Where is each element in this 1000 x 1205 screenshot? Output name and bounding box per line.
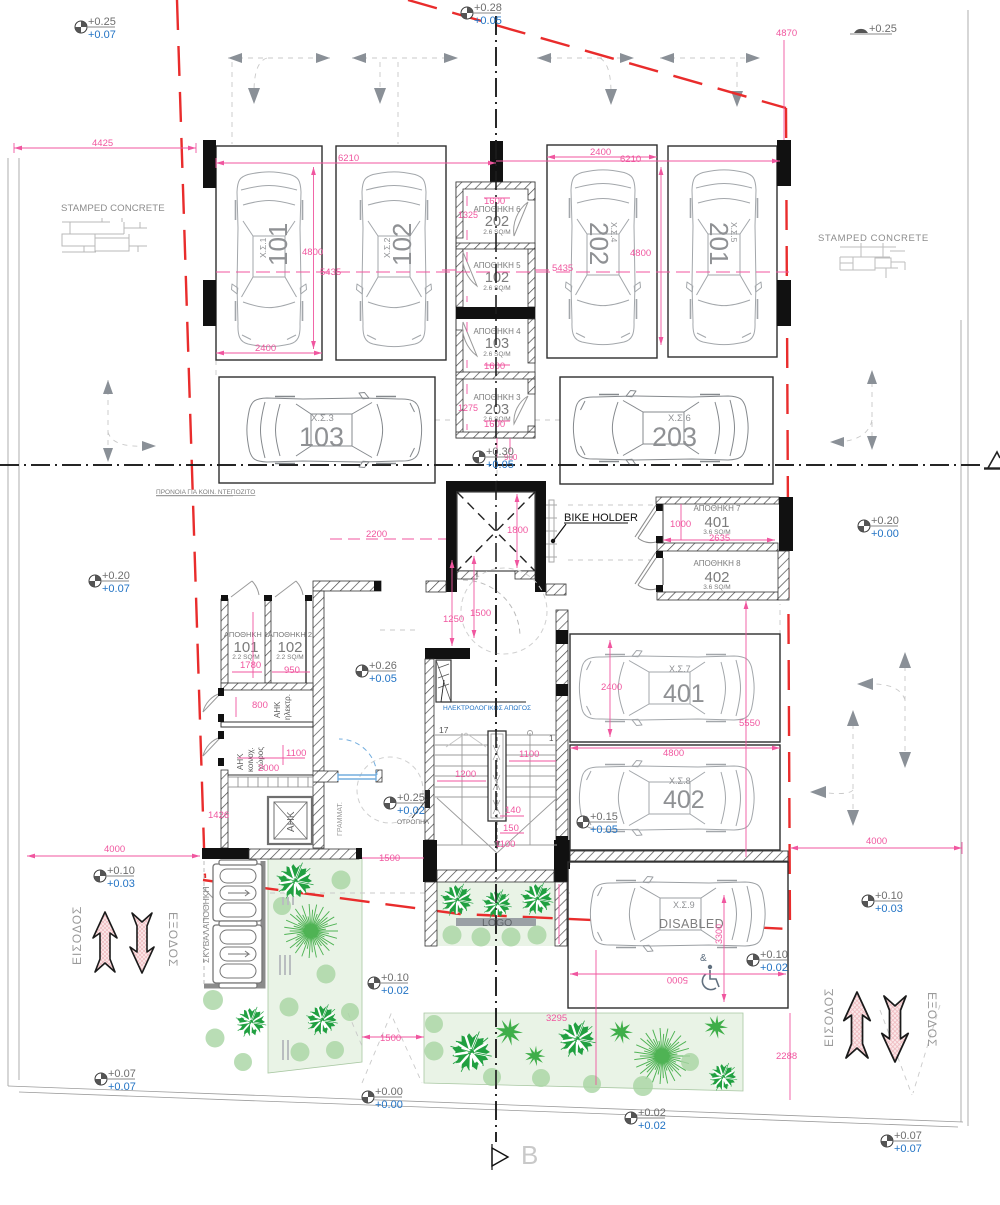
svg-text:1800: 1800: [507, 525, 528, 536]
svg-text:2288: 2288: [776, 1051, 797, 1062]
svg-text:4000: 4000: [866, 836, 887, 847]
svg-text:+0.25: +0.25: [88, 16, 116, 28]
svg-text:+0.28: +0.28: [474, 2, 502, 14]
svg-text:ΑΠΟΘΗΚΗ 2: ΑΠΟΘΗΚΗ 2: [268, 630, 312, 639]
svg-text:ΑΠΟΘΗΚΗ 4: ΑΠΟΘΗΚΗ 4: [473, 327, 521, 336]
svg-text:5435: 5435: [320, 267, 341, 278]
svg-text:ηλεκτρ.: ηλεκτρ.: [283, 694, 292, 720]
svg-text:4800: 4800: [663, 748, 684, 759]
svg-text:ΑΗΚ: ΑΗΚ: [236, 753, 245, 770]
svg-text:ΑΗΚ: ΑΗΚ: [286, 811, 297, 832]
svg-text:+0.02: +0.02: [397, 805, 425, 817]
svg-text:+0.07: +0.07: [102, 583, 130, 595]
svg-text:+0.07: +0.07: [894, 1130, 922, 1142]
svg-text:402: 402: [663, 786, 705, 814]
svg-text:+0.00: +0.00: [375, 1099, 403, 1111]
svg-text:2.6 SQ/M: 2.6 SQ/M: [483, 229, 510, 236]
svg-text:ΕΙΣΟΔΟΣ: ΕΙΣΟΔΟΣ: [70, 906, 84, 965]
svg-text:1500: 1500: [380, 1033, 401, 1044]
svg-text:4000: 4000: [104, 844, 125, 855]
svg-text:3300: 3300: [714, 924, 724, 944]
svg-text:ΑΠΟΘΗΚΗ 5: ΑΠΟΘΗΚΗ 5: [473, 261, 521, 270]
svg-text:4870: 4870: [776, 28, 797, 39]
svg-text:ΕΞΟΔΟΣ: ΕΞΟΔΟΣ: [166, 912, 180, 967]
svg-text:950: 950: [284, 665, 300, 676]
svg-text:6210: 6210: [338, 153, 359, 164]
svg-text:+0.20: +0.20: [102, 570, 130, 582]
svg-text:2400: 2400: [255, 343, 276, 354]
svg-text:+0.05: +0.05: [590, 824, 618, 836]
svg-text:+0.07: +0.07: [894, 1143, 922, 1155]
svg-text:+0.20: +0.20: [871, 515, 899, 527]
svg-text:1325: 1325: [458, 210, 478, 220]
svg-text:4425: 4425: [92, 138, 113, 149]
svg-text:ΟΤΡΟΠΗΛ: ΟΤΡΟΠΗΛ: [397, 819, 430, 826]
svg-text:2400: 2400: [590, 147, 611, 158]
svg-text:ΑΠΟΘΗΚΗ 1: ΑΠΟΘΗΚΗ 1: [224, 630, 268, 639]
svg-text:+0.10: +0.10: [381, 972, 409, 984]
svg-text:ΑΠΟΘΗΚΗ 7: ΑΠΟΘΗΚΗ 7: [693, 504, 741, 513]
svg-text:5435: 5435: [552, 263, 573, 274]
svg-text:+0.26: +0.26: [369, 660, 397, 672]
svg-text:ΑΗΚ: ΑΗΚ: [273, 701, 282, 718]
svg-text:1000: 1000: [670, 519, 691, 530]
svg-text:BIKE HOLDER: BIKE HOLDER: [564, 512, 638, 524]
svg-text:STAMPED CONCRETE: STAMPED CONCRETE: [818, 233, 929, 244]
svg-text:ΓΡΑΜΜΑΤ.: ΓΡΑΜΜΑΤ.: [337, 802, 344, 836]
svg-text:+0.25: +0.25: [397, 792, 425, 804]
svg-text:Χ.Σ.9: Χ.Σ.9: [673, 900, 695, 910]
svg-text:17: 17: [439, 725, 449, 735]
svg-text:+0.00: +0.00: [871, 528, 899, 540]
svg-text:150: 150: [503, 823, 519, 834]
svg-text:2.6 SQ/M: 2.6 SQ/M: [483, 351, 510, 358]
svg-text:2.6 SQ/M: 2.6 SQ/M: [483, 285, 510, 292]
svg-text:1600: 1600: [484, 196, 505, 207]
svg-text:6210: 6210: [620, 154, 641, 165]
svg-text:ΣΚΥΒΑΛΑΠΟΘΗΚΗ: ΣΚΥΒΑΛΑΠΟΘΗΚΗ: [201, 886, 211, 963]
svg-text:Χ.Σ.7: Χ.Σ.7: [669, 664, 691, 674]
svg-text:+0.02: +0.02: [760, 962, 788, 974]
svg-text:+0.10: +0.10: [875, 890, 903, 902]
svg-text:5000: 5000: [667, 974, 688, 985]
svg-text:1600: 1600: [484, 361, 505, 372]
svg-text:800: 800: [252, 700, 268, 711]
svg-text:+0.05: +0.05: [486, 459, 514, 471]
svg-text:ΕΙΣΟΔΟΣ: ΕΙΣΟΔΟΣ: [822, 988, 836, 1047]
svg-text:B: B: [521, 1140, 538, 1170]
svg-text:1275: 1275: [458, 403, 478, 413]
svg-text:κοινοχ.: κοινοχ.: [246, 747, 255, 772]
svg-text:2635: 2635: [709, 533, 730, 544]
svg-text:+0.15: +0.15: [590, 811, 618, 823]
svg-text:+0.07: +0.07: [108, 1081, 136, 1093]
svg-text:+0.07: +0.07: [88, 29, 116, 41]
svg-text:1500: 1500: [470, 608, 491, 619]
svg-text:+0.05: +0.05: [369, 673, 397, 685]
svg-text:1100: 1100: [519, 749, 539, 760]
svg-text:2.2 SQ/M: 2.2 SQ/M: [276, 654, 303, 661]
svg-text:+0.03: +0.03: [107, 878, 135, 890]
svg-text:+0.00: +0.00: [375, 1086, 403, 1098]
svg-text:+0.30: +0.30: [486, 446, 514, 458]
svg-text:202: 202: [584, 222, 614, 265]
svg-text:ΕΞΟΔΟΣ: ΕΞΟΔΟΣ: [925, 992, 939, 1047]
svg-text:2200: 2200: [366, 529, 387, 540]
svg-text:1250: 1250: [443, 614, 464, 625]
svg-text:102: 102: [387, 223, 417, 266]
svg-text:ΑΠΟΘΗΚΗ 8: ΑΠΟΘΗΚΗ 8: [693, 559, 741, 568]
svg-text:4800: 4800: [302, 247, 323, 258]
svg-text:4800: 4800: [630, 248, 651, 259]
svg-text:+0.02: +0.02: [381, 985, 409, 997]
svg-text:1780: 1780: [240, 660, 261, 671]
svg-text:+0.10: +0.10: [760, 949, 788, 961]
svg-text:+0.25: +0.25: [869, 23, 897, 35]
svg-text:103: 103: [485, 336, 509, 352]
svg-text:LOGO: LOGO: [482, 917, 512, 929]
svg-text:103: 103: [299, 422, 344, 452]
svg-text:ΠΡΟΝΟΙΑ ΓΙΑ ΚΟΙΝ. ΝΤΕΠΟΖΙΤΟ: ΠΡΟΝΟΙΑ ΓΙΑ ΚΟΙΝ. ΝΤΕΠΟΖΙΤΟ: [156, 489, 255, 496]
svg-text:3.6 SQ/M: 3.6 SQ/M: [703, 584, 730, 591]
svg-text:ΑΠΟΘΗΚΗ 3: ΑΠΟΘΗΚΗ 3: [473, 393, 521, 402]
svg-text:1426: 1426: [208, 810, 229, 821]
svg-text:201: 201: [704, 222, 734, 265]
svg-text:203: 203: [652, 422, 697, 452]
svg-text:3295: 3295: [546, 1013, 567, 1024]
svg-text:+0.10: +0.10: [107, 865, 135, 877]
svg-text:1: 1: [549, 734, 554, 743]
svg-text:&: &: [700, 953, 707, 964]
svg-text:101: 101: [263, 223, 293, 266]
svg-text:+0.03: +0.03: [875, 903, 903, 915]
svg-text:1100: 1100: [286, 748, 306, 759]
svg-text:1100: 1100: [495, 839, 515, 850]
svg-text:1200: 1200: [455, 769, 476, 780]
svg-text:+0.02: +0.02: [638, 1107, 666, 1119]
svg-text:+0.07: +0.07: [108, 1068, 136, 1080]
svg-text:1500: 1500: [379, 853, 400, 864]
svg-text:1600: 1600: [484, 419, 505, 430]
svg-text:STAMPED CONCRETE: STAMPED CONCRETE: [61, 203, 165, 214]
svg-text:202: 202: [485, 214, 509, 230]
svg-text:5550: 5550: [739, 718, 760, 729]
svg-text:140: 140: [505, 805, 521, 816]
svg-text:2400: 2400: [601, 682, 622, 693]
svg-text:2000: 2000: [258, 763, 279, 774]
svg-text:+0.05: +0.05: [474, 15, 502, 27]
svg-text:+0.02: +0.02: [638, 1120, 666, 1132]
svg-text:ΗΛΕΚΤΡΟΛΟΓΙΚΟΣ ΑΠΩΓΟΣ: ΗΛΕΚΤΡΟΛΟΓΙΚΟΣ ΑΠΩΓΟΣ: [443, 705, 531, 712]
svg-text:Χ.Σ.8: Χ.Σ.8: [669, 776, 691, 786]
svg-text:401: 401: [663, 680, 705, 708]
